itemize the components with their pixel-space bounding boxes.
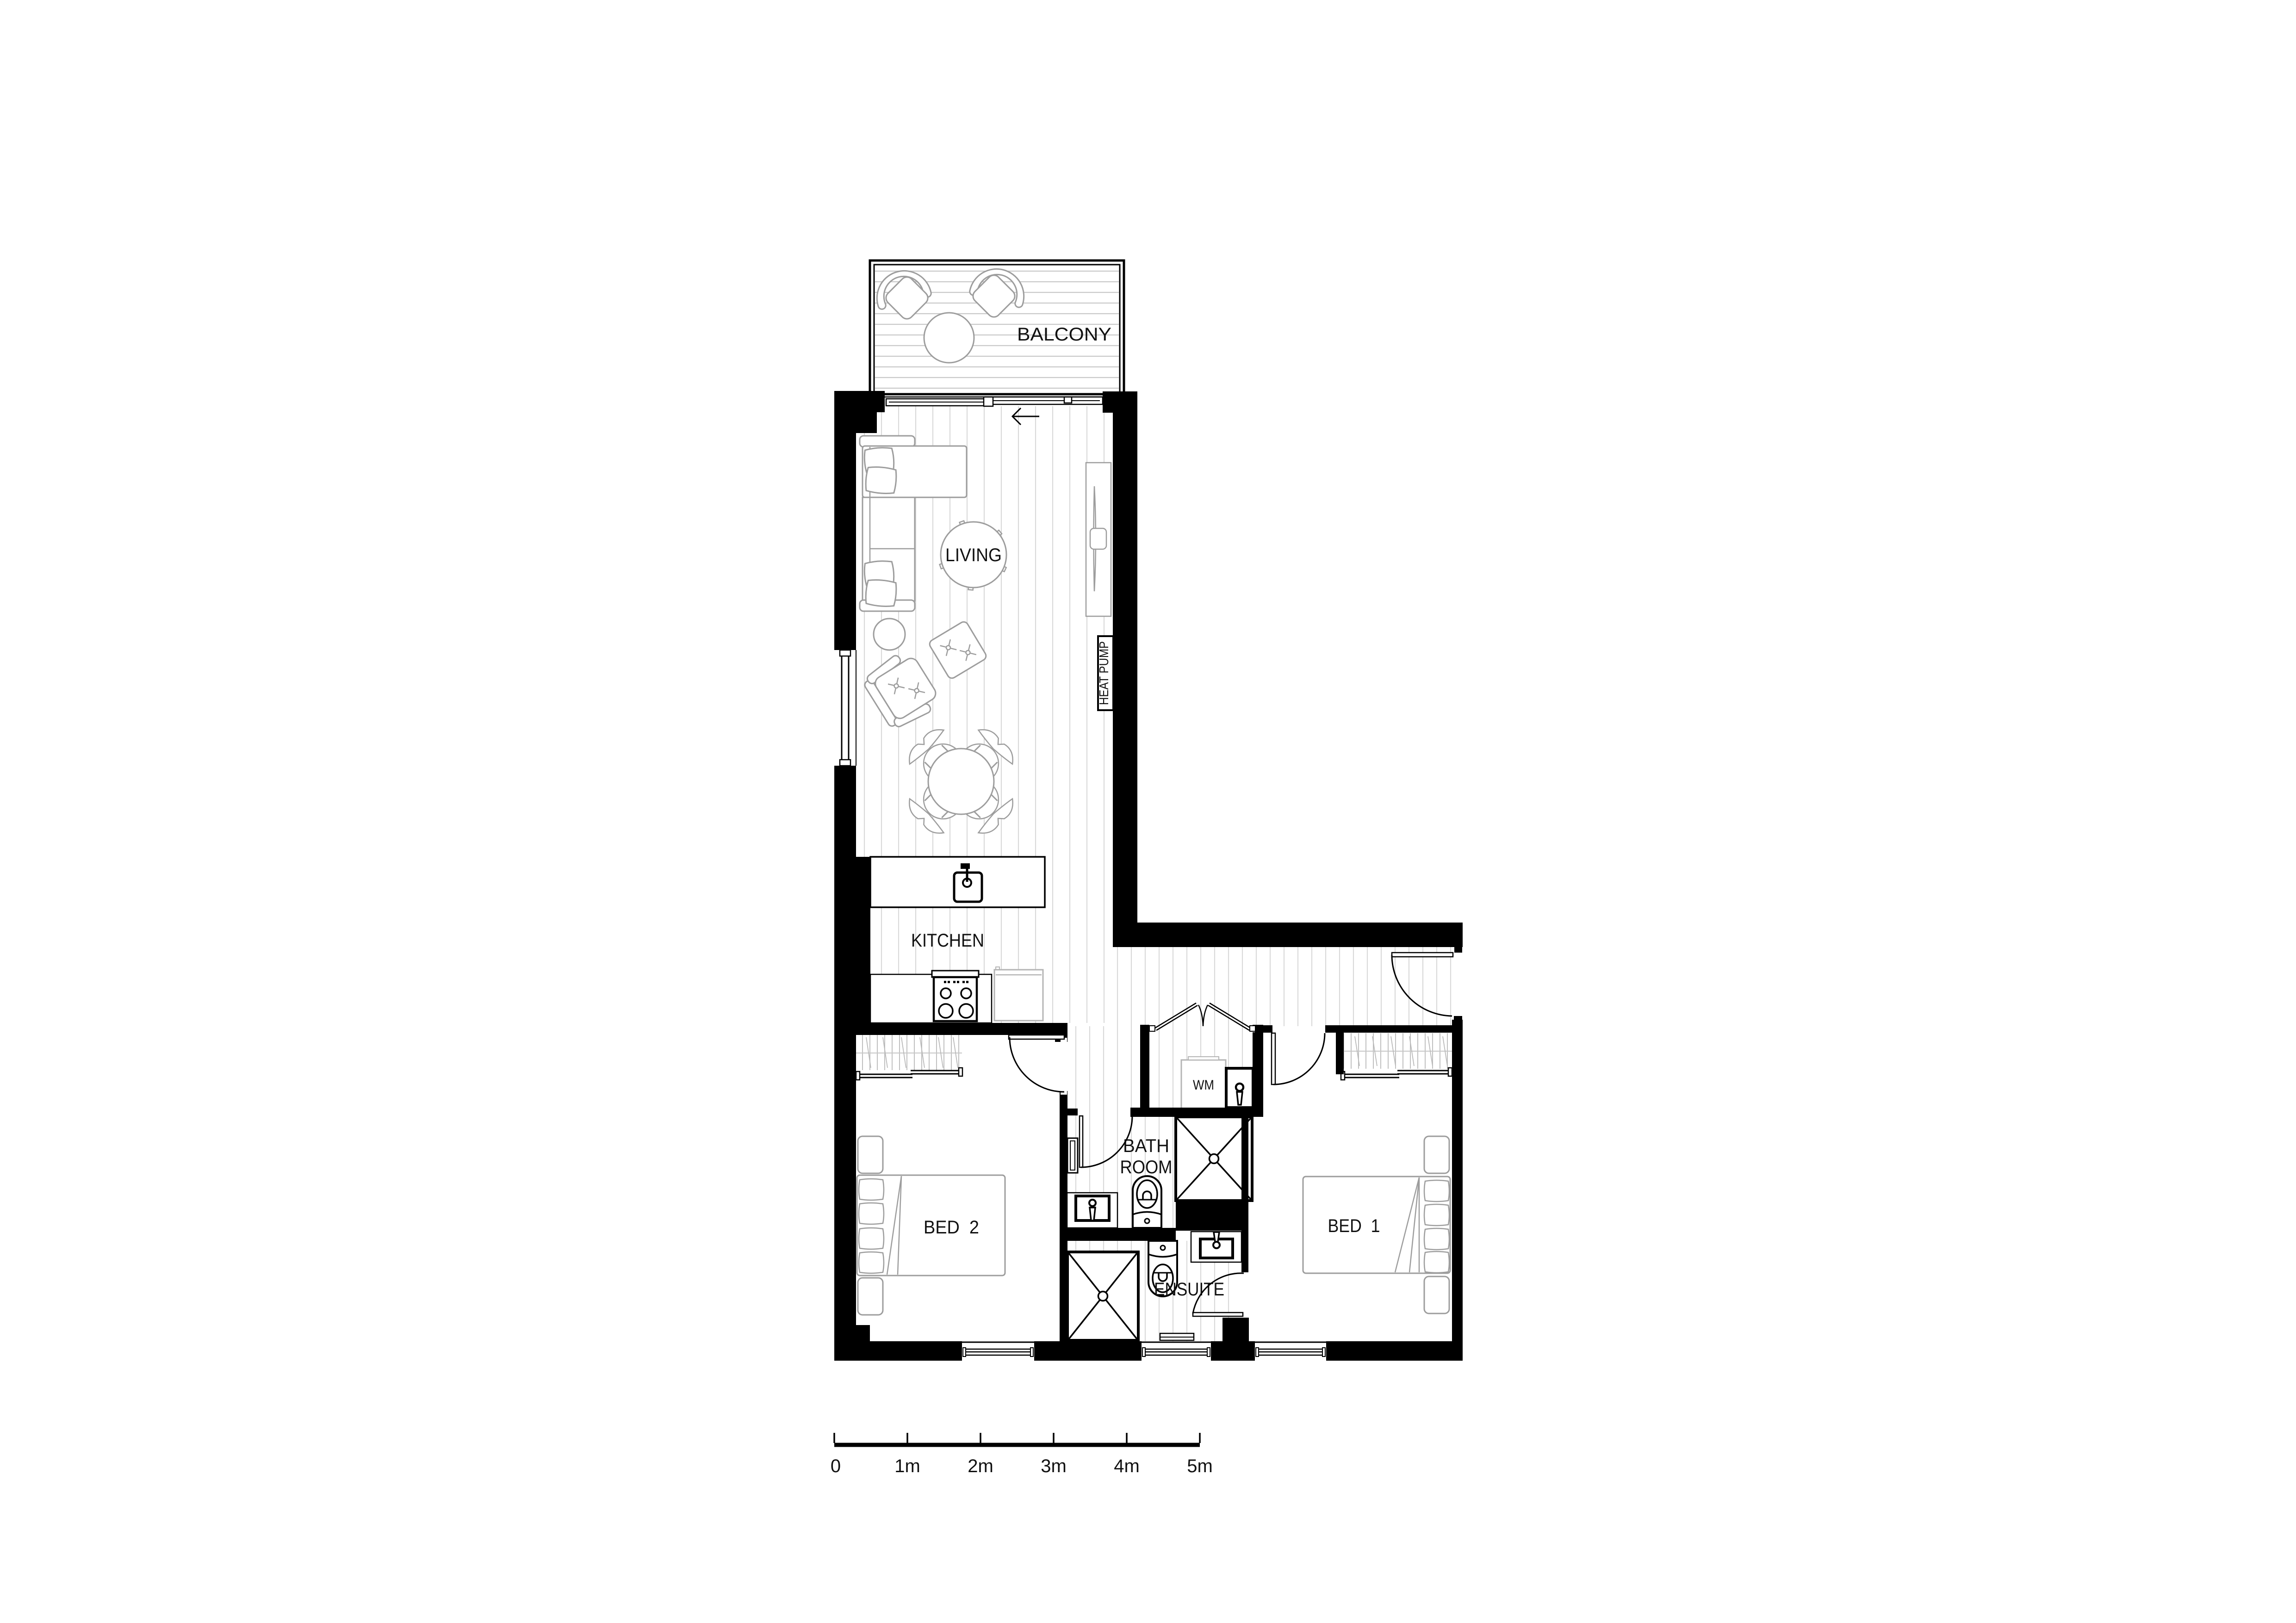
svg-text:BED 2: BED 2 bbox=[924, 1217, 979, 1238]
svg-text:HEAT PUMP: HEAT PUMP bbox=[1097, 641, 1111, 705]
svg-text:ROOM: ROOM bbox=[1120, 1157, 1173, 1177]
svg-text:4m: 4m bbox=[1114, 1456, 1140, 1476]
svg-text:BALCONY: BALCONY bbox=[1017, 324, 1111, 345]
svg-text:0: 0 bbox=[831, 1456, 841, 1476]
svg-text:5m: 5m bbox=[1187, 1456, 1213, 1476]
svg-text:WM: WM bbox=[1193, 1078, 1214, 1093]
svg-text:3m: 3m bbox=[1041, 1456, 1067, 1476]
svg-text:LIVING: LIVING bbox=[945, 545, 1002, 565]
svg-text:2m: 2m bbox=[968, 1456, 993, 1476]
svg-text:BATH: BATH bbox=[1123, 1136, 1169, 1156]
svg-text:1m: 1m bbox=[894, 1456, 920, 1476]
svg-text:BED 1: BED 1 bbox=[1328, 1216, 1380, 1236]
svg-text:KITCHEN: KITCHEN bbox=[911, 930, 984, 951]
